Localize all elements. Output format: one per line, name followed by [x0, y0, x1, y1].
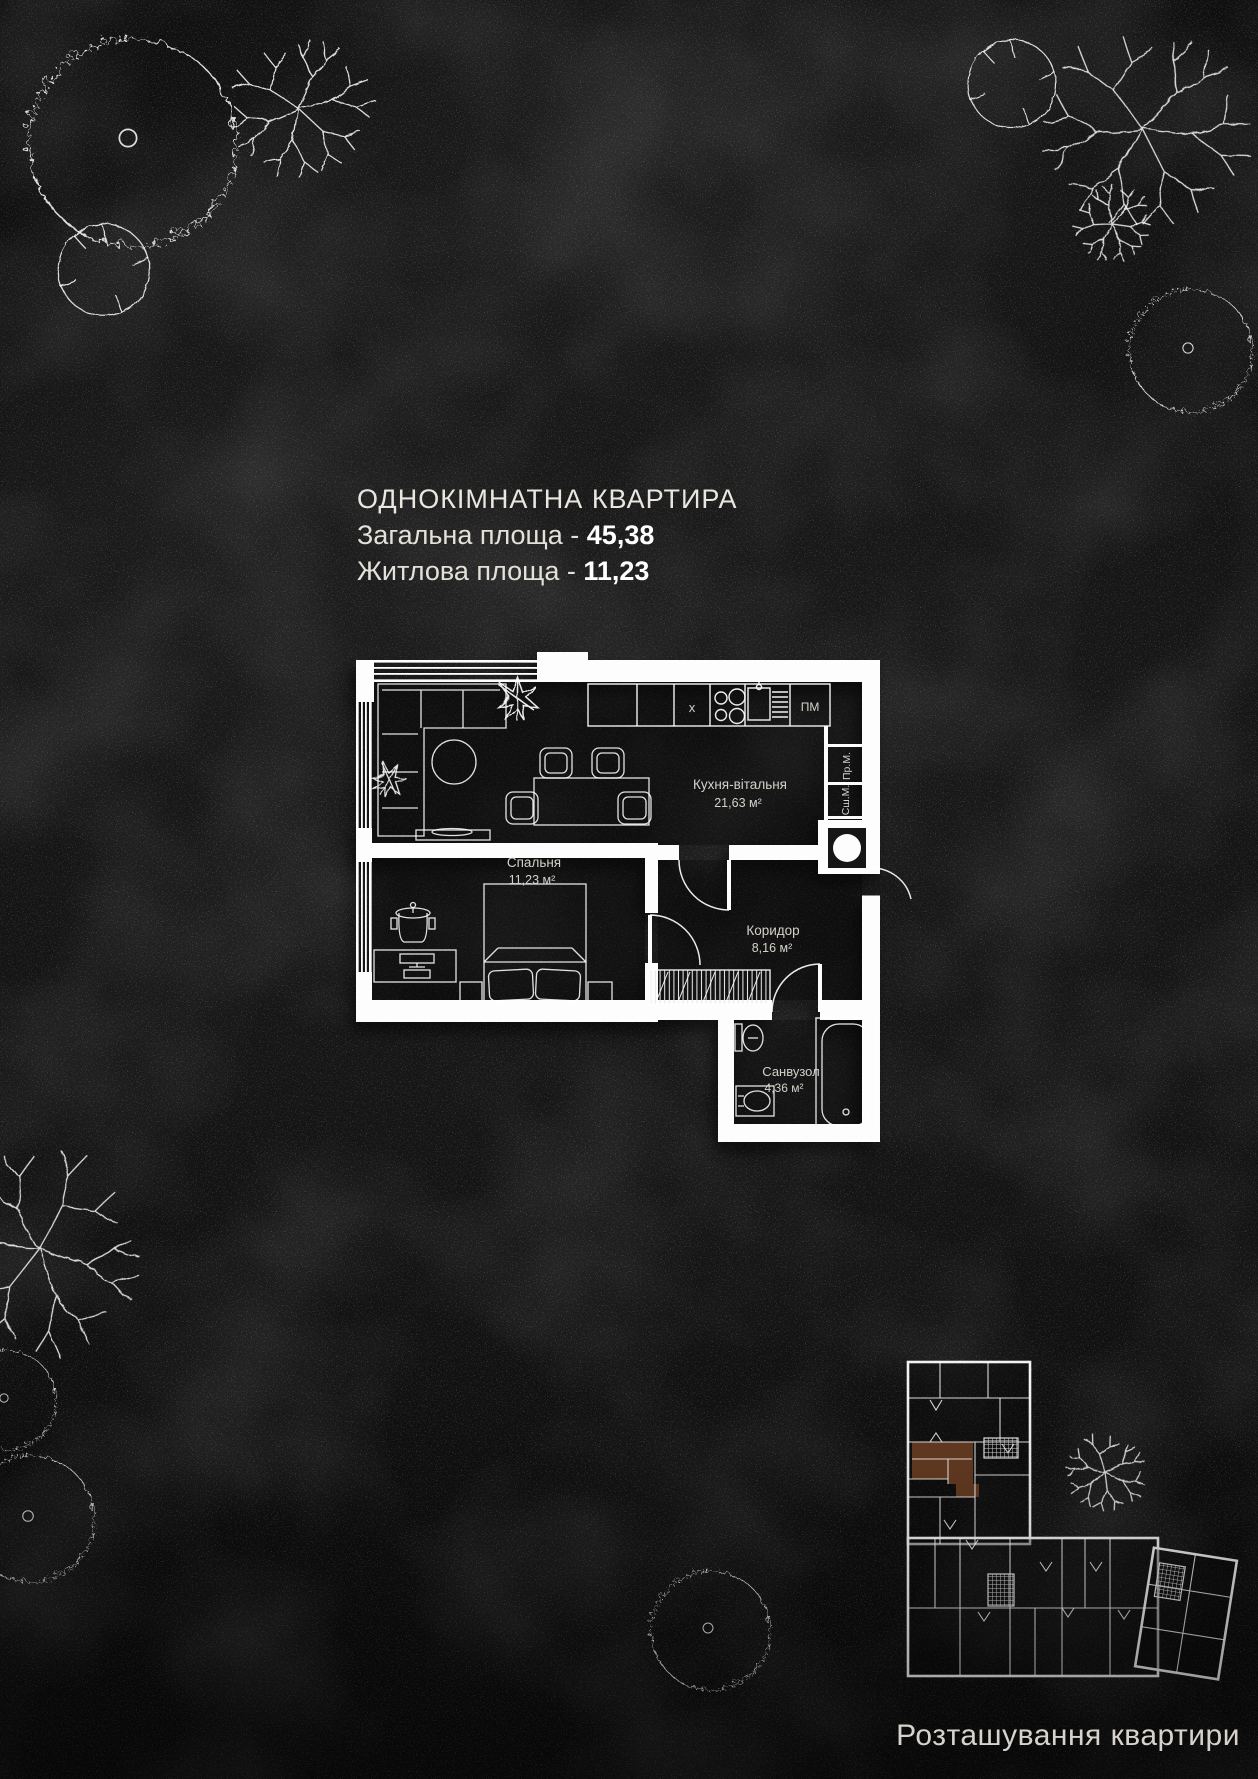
appliance-label-dishwasher: ПМ [801, 700, 820, 714]
scene-canvas: Кухня-вітальня 21,63 м² Спальня 11,23 м²… [0, 0, 1258, 1779]
vent-mark-label: x [689, 700, 696, 715]
floorplan-poster: { "header": { "title": "ОДНОКІМНАТНА КВА… [0, 0, 1258, 1779]
appliance-label-washer: Пр.М. [841, 752, 853, 780]
room-label-corridor: Коридор [746, 923, 799, 938]
total-area-value: 45,38 [587, 520, 655, 550]
wardrobe-icon [650, 970, 770, 1004]
room-area-corridor: 8,16 м² [752, 941, 793, 955]
living-area-value: 11,23 [583, 556, 649, 586]
room-area-bathroom: 4,36 м² [765, 1081, 804, 1095]
page-title: ОДНОКІМНАТНА КВАРТИРА [357, 484, 738, 515]
room-area-kitchen: 21,63 м² [714, 796, 762, 810]
living-area-line: Житлова площа - 11,23 [357, 556, 738, 587]
room-label-bathroom: Санвузол [762, 1064, 819, 1079]
header: ОДНОКІМНАТНА КВАРТИРА Загальна площа - 4… [357, 484, 738, 587]
total-area-label: Загальна площа - [357, 520, 579, 550]
room-label-kitchen: Кухня-вітальня [693, 777, 787, 792]
vent-shaft [828, 828, 866, 868]
total-area-line: Загальна площа - 45,38 [357, 520, 738, 551]
room-label-bedroom: Спальня [507, 855, 561, 870]
appliance-label-dryer: Сш.М. [840, 785, 852, 816]
location-caption: Розташування квартири [896, 1719, 1240, 1753]
room-area-bedroom: 11,23 м² [509, 873, 556, 887]
living-area-label: Житлова площа - [357, 556, 576, 586]
